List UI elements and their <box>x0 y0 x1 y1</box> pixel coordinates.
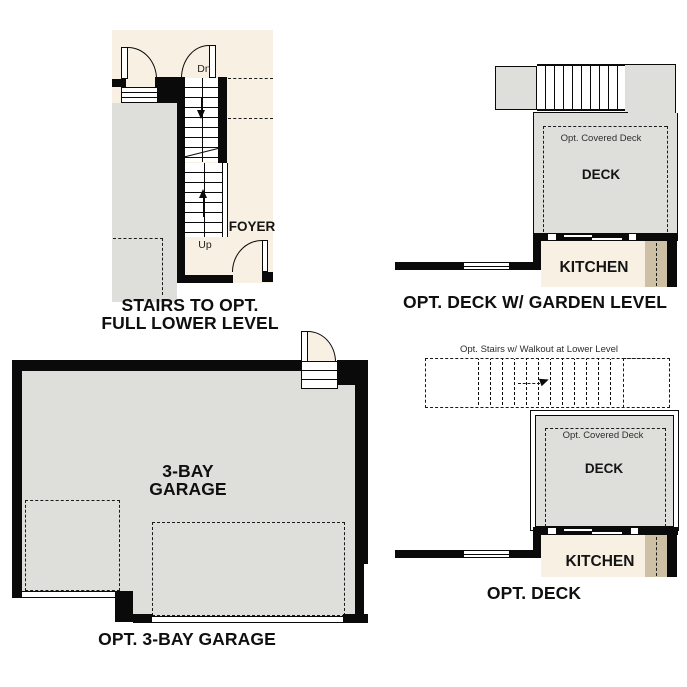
window-slit <box>548 528 556 534</box>
deck-label: DECK <box>585 461 623 476</box>
wall-section-dashed-line <box>656 537 657 576</box>
covered-deck-dashed-outline <box>545 428 665 429</box>
floorplan-options-sheet: Dn Up FOYER STAIRS TO OPT. FULL LOWER LE… <box>0 0 687 687</box>
figure-caption: OPT. DECK <box>487 583 581 604</box>
covered-deck-dashed-outline <box>545 428 546 527</box>
window-slit <box>631 528 638 534</box>
covered-deck-dashed-outline <box>665 428 666 527</box>
kitchen-label: KITCHEN <box>566 553 635 571</box>
stair-direction-arrow <box>518 383 540 384</box>
deck-figure: Opt. Stairs w/ Walkout at Lower Level Op… <box>0 0 687 687</box>
walkout-stairs-note: Opt. Stairs w/ Walkout at Lower Level <box>460 344 618 355</box>
right-wall <box>667 528 677 577</box>
covered-deck-label: Opt. Covered Deck <box>563 430 644 441</box>
walkout-stairs-dashed-outline <box>623 358 670 413</box>
window <box>463 550 510 558</box>
sliding-door <box>563 528 593 532</box>
